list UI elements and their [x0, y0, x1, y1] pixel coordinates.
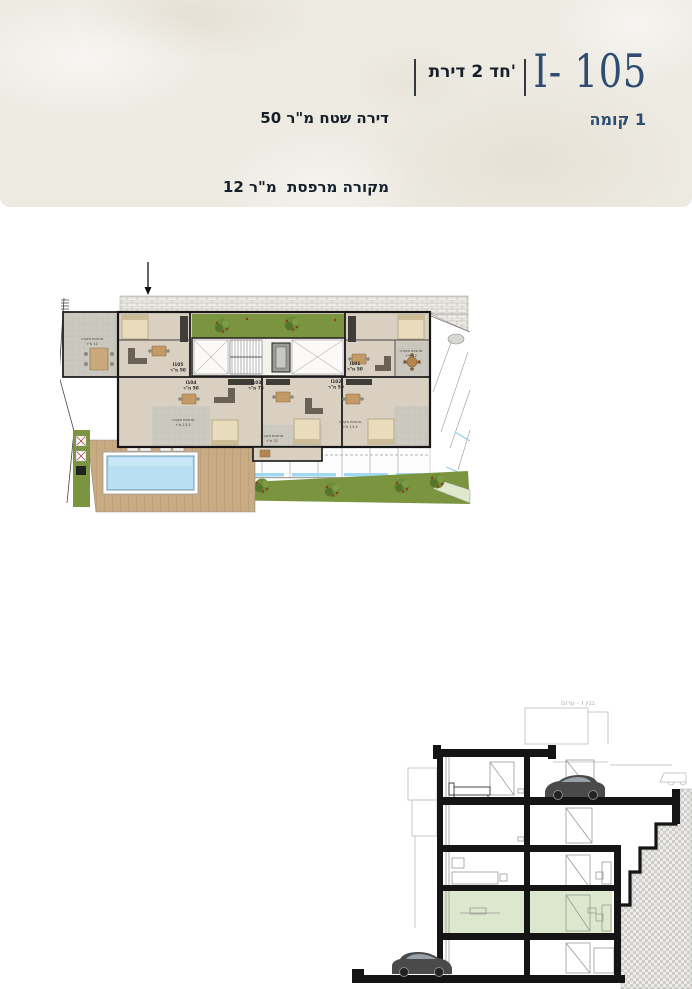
unit-area: 50 מ"ר	[347, 367, 363, 373]
balcony-label: מרפסת מקורה	[172, 418, 195, 422]
balcony-label: מרפסת מקורה	[400, 349, 423, 353]
unit-label: I102	[331, 379, 342, 385]
unit-label: I103	[251, 380, 262, 386]
header-banner: I- 105 קומה‎ 1 דירת‎ 2 חד' 50 מ"ר‎ שטח‎ …	[0, 0, 692, 207]
divider-line	[414, 59, 416, 96]
apartment-type: דירת‎ 2 חד'	[429, 62, 516, 82]
unit-code: I- 105	[533, 48, 647, 94]
unit-label: I105	[173, 362, 184, 368]
terrain-hatch	[621, 789, 692, 989]
balcony-area: 13.5 מ"ר	[175, 423, 190, 427]
middle-balcony	[253, 447, 322, 461]
car-top	[545, 775, 605, 800]
floor-plan: I105 50 מ"ר I104 50 מ"ר I103 75 מ"ר I102…	[60, 255, 475, 530]
balcony-area: 12 מ"ר	[405, 354, 417, 358]
brochure-page: I- 105 קומה‎ 1 דירת‎ 2 חד' 50 מ"ר‎ שטח‎ …	[0, 0, 692, 989]
section-caption: בנין I - ערום	[561, 699, 595, 707]
unit-area: 75 מ"ר	[248, 386, 264, 392]
balcony-area: 12 מ"ר	[86, 342, 98, 346]
stair-core	[192, 338, 345, 376]
floor-label: קומה‎ 1	[589, 110, 646, 129]
spec-lines: 50 מ"ר‎ שטח‎ דירה 12 מ"ר‎ מרפסת‎ מקורה	[223, 61, 389, 245]
balcony-area: 22 מ"ר	[266, 439, 278, 443]
building-section: בנין I - ערום	[340, 690, 692, 989]
spec-area: 50 מ"ר‎ שטח‎ דירה	[223, 107, 389, 130]
spec-balcony: 12 מ"ר‎ מרפסת‎ מקורה	[223, 176, 389, 199]
neighbour-plot	[431, 316, 470, 476]
orientation-arrow	[145, 262, 152, 295]
balcony-label: מרפסת מקורה	[261, 434, 284, 438]
unit-label: I104	[186, 380, 197, 386]
unit-area: 50 מ"ר	[183, 386, 199, 392]
unit-area: 50 מ"ר	[328, 385, 344, 391]
unit-area: 50 מ"ר	[170, 368, 186, 374]
balcony-label: מרפסת מקורה	[339, 420, 362, 424]
divider-line	[524, 59, 526, 96]
bed-outline	[449, 783, 490, 797]
balcony-label: מרפסת מקורה	[81, 337, 104, 341]
pool	[103, 452, 198, 494]
balcony-area: 13.5 מ"ר	[342, 425, 357, 429]
unit-label: I101	[350, 361, 361, 367]
